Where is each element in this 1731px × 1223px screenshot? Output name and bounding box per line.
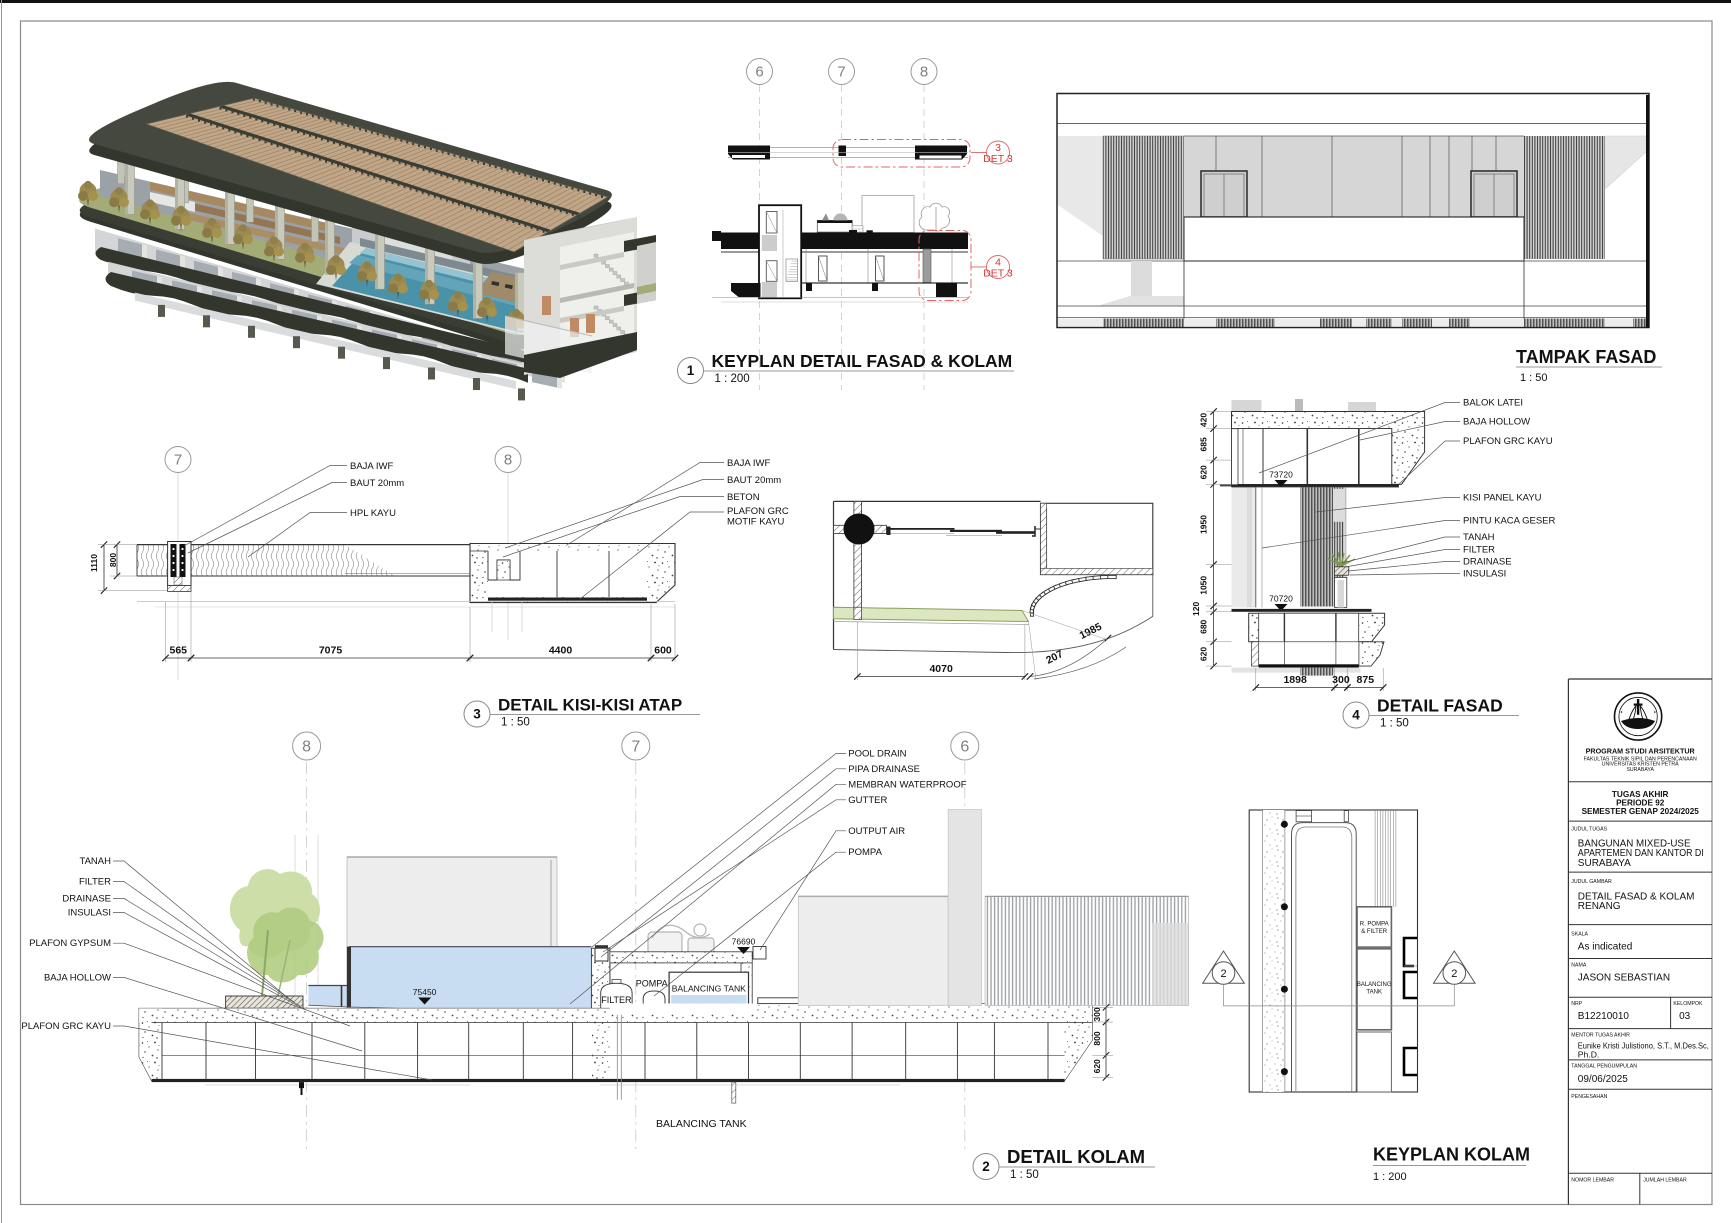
svg-text:JASON SEBASTIAN: JASON SEBASTIAN xyxy=(1578,973,1670,984)
svg-text:8: 8 xyxy=(920,63,928,80)
svg-text:TANGGAL PENGUMPULAN: TANGGAL PENGUMPULAN xyxy=(1571,1064,1637,1070)
svg-text:DETAIL FASAD: DETAIL FASAD xyxy=(1377,696,1503,716)
svg-text:120: 120 xyxy=(1191,602,1201,616)
svg-text:565: 565 xyxy=(169,645,187,657)
svg-text:300: 300 xyxy=(1332,674,1350,686)
svg-text:2: 2 xyxy=(982,1159,990,1174)
svg-text:Ph.D.: Ph.D. xyxy=(1578,1050,1600,1060)
svg-text:KEYPLAN KOLAM: KEYPLAN KOLAM xyxy=(1373,1145,1530,1165)
svg-text:JUDUL TUGAS: JUDUL TUGAS xyxy=(1571,827,1607,833)
svg-text:73720: 73720 xyxy=(1269,470,1293,480)
svg-text:FILTER: FILTER xyxy=(601,995,632,1005)
svg-text:800: 800 xyxy=(108,553,118,567)
svg-text:BAUT 20mm: BAUT 20mm xyxy=(350,478,404,489)
svg-text:DET 3: DET 3 xyxy=(983,153,1013,165)
svg-text:BALANCING TANK: BALANCING TANK xyxy=(672,984,746,994)
svg-text:BAJA IWF: BAJA IWF xyxy=(727,458,770,469)
svg-text:DET 3: DET 3 xyxy=(983,268,1013,280)
svg-text:PLAFON GRC KAYU: PLAFON GRC KAYU xyxy=(1463,436,1553,447)
svg-text:GUTTER: GUTTER xyxy=(848,795,887,806)
svg-text:1 : 50: 1 : 50 xyxy=(1380,718,1409,730)
svg-text:NOMOR LEMBAR: NOMOR LEMBAR xyxy=(1571,1178,1614,1184)
svg-text:KEYPLAN DETAIL FASAD & KOLAM: KEYPLAN DETAIL FASAD & KOLAM xyxy=(712,351,1013,371)
svg-text:SURABAYA: SURABAYA xyxy=(1626,767,1654,773)
svg-text:4: 4 xyxy=(1352,708,1360,723)
svg-text:03: 03 xyxy=(1679,1011,1691,1022)
svg-text:R. POMPA: R. POMPA xyxy=(1360,922,1389,928)
svg-text:BALANCING TANK: BALANCING TANK xyxy=(656,1118,747,1130)
svg-text:B12210010: B12210010 xyxy=(1578,1011,1630,1022)
svg-text:76690: 76690 xyxy=(732,937,756,947)
svg-text:PENGESAHAN: PENGESAHAN xyxy=(1571,1094,1607,1100)
svg-text:JUDUL GAMBAR: JUDUL GAMBAR xyxy=(1571,879,1612,885)
svg-text:PROGRAM STUDI ARSITEKTUR: PROGRAM STUDI ARSITEKTUR xyxy=(1586,747,1696,756)
svg-text:TANAH: TANAH xyxy=(1463,532,1495,543)
svg-text:PINTU KACA GESER: PINTU KACA GESER xyxy=(1463,516,1556,527)
svg-text:8: 8 xyxy=(302,738,311,755)
svg-text:2: 2 xyxy=(1220,968,1226,980)
svg-text:7: 7 xyxy=(631,738,640,755)
svg-text:PLAFON GRC: PLAFON GRC xyxy=(727,506,789,517)
svg-text:POMPA: POMPA xyxy=(848,847,882,858)
svg-text:DETAIL KOLAM: DETAIL KOLAM xyxy=(1007,1146,1145,1167)
svg-text:DRAINASE: DRAINASE xyxy=(62,893,111,904)
svg-text:685: 685 xyxy=(1198,437,1208,451)
svg-text:OUTPUT AIR: OUTPUT AIR xyxy=(848,826,905,837)
svg-text:1: 1 xyxy=(687,363,695,378)
svg-text:300: 300 xyxy=(1092,1007,1102,1021)
svg-text:BAUT 20mm: BAUT 20mm xyxy=(727,475,781,486)
svg-text:INSULASI: INSULASI xyxy=(1463,569,1506,580)
svg-text:800: 800 xyxy=(1092,1031,1102,1045)
svg-text:PIPA DRAINASE: PIPA DRAINASE xyxy=(848,764,920,775)
svg-text:1898: 1898 xyxy=(1283,674,1307,686)
svg-text:DETAIL KISI-KISI ATAP: DETAIL KISI-KISI ATAP xyxy=(498,696,682,715)
svg-text:75450: 75450 xyxy=(413,987,437,997)
svg-text:NAMA: NAMA xyxy=(1571,963,1587,969)
svg-text:1110: 1110 xyxy=(89,554,99,572)
svg-text:680: 680 xyxy=(1198,619,1208,633)
svg-text:MOTIF KAYU: MOTIF KAYU xyxy=(727,517,784,528)
svg-text:7: 7 xyxy=(837,63,845,80)
svg-text:600: 600 xyxy=(654,645,672,657)
svg-text:SURABAYA: SURABAYA xyxy=(1578,858,1631,869)
svg-text:1 : 50: 1 : 50 xyxy=(501,717,530,729)
svg-text:SKALA: SKALA xyxy=(1571,932,1588,938)
svg-text:SEMESTER GENAP 2024/2025: SEMESTER GENAP 2024/2025 xyxy=(1582,807,1700,816)
svg-text:As indicated: As indicated xyxy=(1578,942,1632,953)
svg-text:7: 7 xyxy=(174,451,182,468)
svg-text:PLAFON GRC KAYU: PLAFON GRC KAYU xyxy=(21,1021,111,1032)
svg-text:6: 6 xyxy=(755,63,763,80)
svg-text:FILTER: FILTER xyxy=(1463,545,1495,556)
svg-text:875: 875 xyxy=(1357,674,1375,686)
svg-text:1050: 1050 xyxy=(1198,576,1208,595)
svg-text:TANK: TANK xyxy=(1366,990,1382,996)
svg-text:MEMBRAN WATERPROOF: MEMBRAN WATERPROOF xyxy=(848,779,966,790)
svg-text:4070: 4070 xyxy=(929,663,953,675)
svg-text:& FILTER: & FILTER xyxy=(1361,929,1388,935)
svg-text:3: 3 xyxy=(473,707,481,722)
svg-text:MENTOR TUGAS AKHIR: MENTOR TUGAS AKHIR xyxy=(1571,1033,1630,1039)
svg-text:PLAFON GYPSUM: PLAFON GYPSUM xyxy=(29,938,111,949)
svg-text:HPL KAYU: HPL KAYU xyxy=(350,508,396,519)
svg-text:620: 620 xyxy=(1092,1059,1102,1073)
svg-text:70720: 70720 xyxy=(1269,594,1293,604)
svg-text:NRP: NRP xyxy=(1571,1001,1582,1007)
svg-text:RENANG: RENANG xyxy=(1578,901,1621,912)
svg-text:KELOMPOK: KELOMPOK xyxy=(1673,1001,1703,1007)
svg-text:420: 420 xyxy=(1198,413,1208,427)
svg-text:INSULASI: INSULASI xyxy=(68,908,111,919)
svg-text:TANAH: TANAH xyxy=(80,856,112,867)
svg-text:FILTER: FILTER xyxy=(79,877,111,888)
svg-text:TAMPAK FASAD: TAMPAK FASAD xyxy=(1516,347,1656,367)
svg-text:7075: 7075 xyxy=(319,645,343,657)
svg-text:09/06/2025: 09/06/2025 xyxy=(1578,1074,1628,1085)
svg-text:KISI PANEL KAYU: KISI PANEL KAYU xyxy=(1463,493,1542,504)
svg-text:1 : 50: 1 : 50 xyxy=(1010,1169,1039,1181)
svg-text:BAJA IWF: BAJA IWF xyxy=(350,461,393,472)
svg-text:1950: 1950 xyxy=(1198,515,1208,534)
svg-text:JUMLAH LEMBAR: JUMLAH LEMBAR xyxy=(1643,1178,1687,1184)
svg-text:620: 620 xyxy=(1198,647,1208,661)
svg-text:POOL DRAIN: POOL DRAIN xyxy=(848,749,906,760)
svg-text:POMPA: POMPA xyxy=(636,979,668,989)
svg-text:DRAINASE: DRAINASE xyxy=(1463,557,1512,568)
svg-text:BAJA HOLLOW: BAJA HOLLOW xyxy=(44,972,111,983)
svg-text:6: 6 xyxy=(960,738,969,755)
svg-text:BALOK LATEI: BALOK LATEI xyxy=(1463,398,1523,409)
svg-text:BAJA HOLLOW: BAJA HOLLOW xyxy=(1463,417,1530,428)
svg-text:620: 620 xyxy=(1198,465,1208,479)
svg-text:1 : 200: 1 : 200 xyxy=(715,373,750,385)
svg-text:1 : 200: 1 : 200 xyxy=(1373,1171,1407,1183)
svg-text:2: 2 xyxy=(1451,968,1457,980)
svg-text:1 : 50: 1 : 50 xyxy=(1520,372,1548,384)
svg-text:4400: 4400 xyxy=(549,645,573,657)
svg-text:8: 8 xyxy=(504,451,512,468)
svg-text:BETON: BETON xyxy=(727,492,760,503)
svg-text:BALANCING: BALANCING xyxy=(1357,982,1392,988)
